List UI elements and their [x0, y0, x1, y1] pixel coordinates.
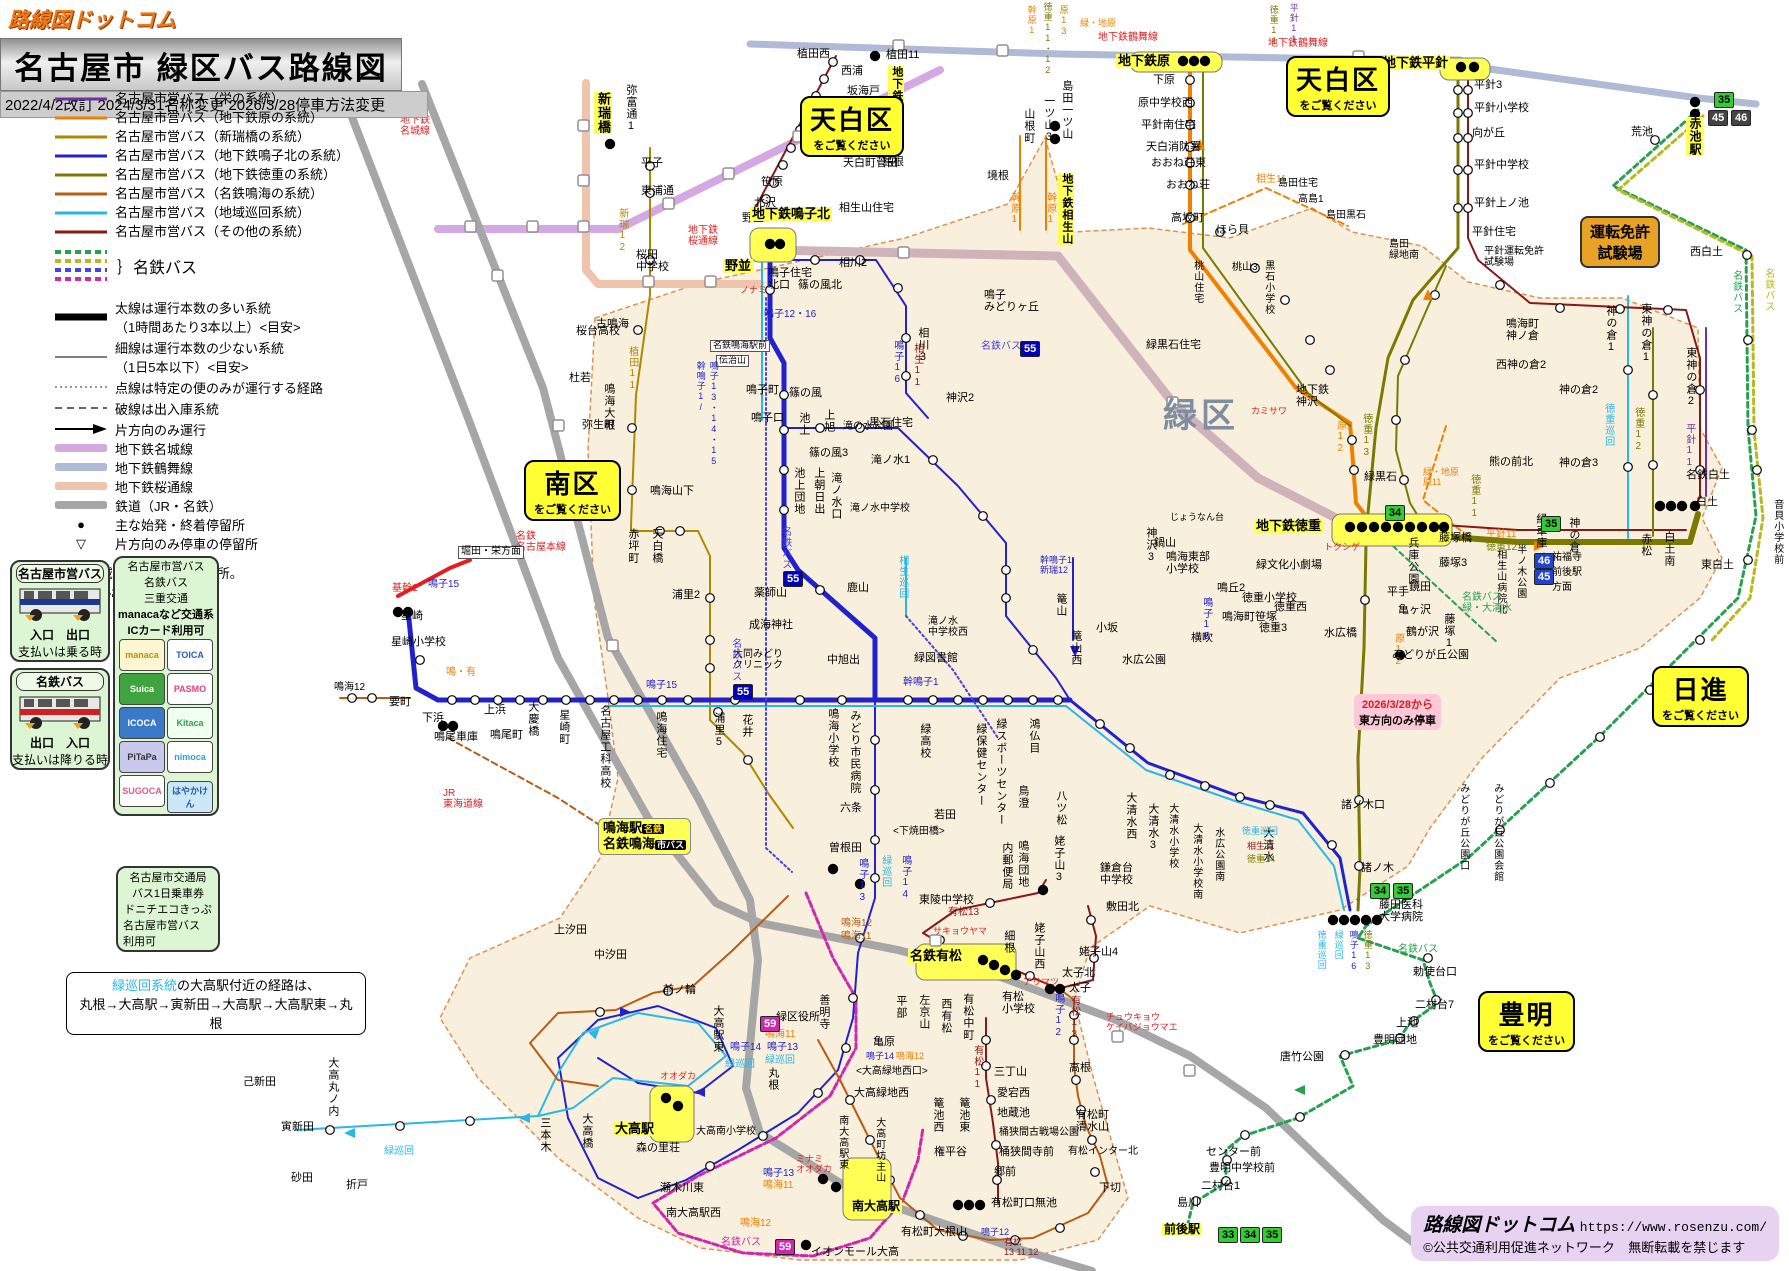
map-stop-label: 平針住宅 — [1472, 227, 1516, 239]
map-stop-label: 島川 — [1177, 1198, 1199, 1210]
map-stop-label: 東神の倉1 — [1639, 303, 1651, 364]
meitetsu-bus-note: 支払いは降りる時 — [12, 751, 108, 768]
map-stop-label: 向が丘 — [1472, 128, 1505, 140]
map-stop-label: 地下鉄徳重 — [1254, 519, 1323, 533]
map-stop-label: 徳重11・12 — [1042, 2, 1052, 76]
map-stop-label: 地下鉄 神沢 — [1296, 385, 1329, 409]
map-stop-label: 鳴子13・14・15 — [708, 361, 718, 467]
map-stop-label: 平針11 — [1486, 530, 1516, 541]
map-stop-label: 植田西 — [797, 49, 830, 61]
map-stop-label: 瀬木川東 — [660, 1183, 704, 1195]
ic-card-manaca: manaca — [119, 639, 165, 671]
map-stop-label: 緑高校 — [918, 723, 930, 759]
route-number-badge: 35 — [1393, 883, 1413, 899]
map-stop-label: 豊明中学校前 — [1209, 1163, 1275, 1175]
map-stop-label: 大高駅 — [613, 1122, 656, 1136]
legend-route-row: 名古屋市営バス（その他の系統） — [55, 221, 349, 240]
map-stop-label: 前後駅 — [1162, 1223, 1202, 1236]
map-stop-label: 大高緑地西 — [854, 1088, 909, 1100]
map-stop-label: 桃山住宅 — [1191, 260, 1202, 304]
map-stop-label: 大慶橋 — [526, 701, 538, 737]
map-stop-label: 太子北 — [1062, 968, 1095, 980]
ic-card-PASMO: PASMO — [167, 673, 213, 705]
map-stop-label: 中汐田 — [594, 950, 627, 962]
map-stop-label: 篠の風北 — [798, 280, 842, 292]
legend-rail-label: 地下鉄桜通線 — [115, 477, 193, 496]
map-stop-label: 大清水小学校南 — [1190, 823, 1201, 900]
map-stop-label: 西白土 — [1690, 247, 1723, 259]
map-stop-label: 勅使台口 — [1413, 967, 1457, 979]
legend-route-swatch — [55, 147, 107, 162]
map-stop-label: 白土 — [1696, 497, 1718, 509]
map-stop-label: 八ツ松 — [1054, 790, 1066, 826]
map-stop-label: 若田 — [934, 810, 956, 822]
map-stop-label: 杜若 — [569, 373, 591, 385]
legend-route-swatch — [55, 223, 107, 238]
map-stop-label: 姥子山3 — [1052, 835, 1064, 884]
ic-card-box: 名古屋市営バス 名鉄バス 三重交通 manacaなど交通系 ICカード利用可 m… — [113, 556, 219, 816]
map-stop-label: 徳重小学校 — [1242, 593, 1297, 605]
map-stop-label: 緑巡回 — [879, 855, 890, 888]
map-stop-label: 緑・地原 — [1080, 19, 1116, 29]
legend-symbol-row: ● 主な始発・終着停留所 — [55, 515, 349, 534]
route-number-badge: 59 — [760, 1016, 780, 1032]
route-number-badge: 45 — [1708, 110, 1728, 126]
legend-route-row: 名古屋市営バス（地域巡回系統） — [55, 202, 349, 221]
map-stop-label: ノナミ — [740, 286, 767, 296]
legend-route-swatch — [55, 90, 107, 105]
ic-operators: 名古屋市営バス 名鉄バス 三重交通 — [115, 558, 217, 606]
station-name: 名鉄鳴海 — [603, 836, 655, 851]
callout-area-name: 豊明 — [1488, 995, 1565, 1032]
page-title: 名古屋市 緑区バス路線図 — [1, 39, 401, 90]
map-stop-label: 幹鳴子1 新瑞12 — [1040, 556, 1072, 575]
callout-see-text: をご覧ください — [1296, 97, 1380, 113]
map-stop-label: 緑図書館 — [914, 653, 958, 665]
map-stop-label: 鶴が沢 — [1406, 627, 1439, 639]
map-stop-label: 愛宕西 — [997, 1088, 1030, 1100]
map-stop-label: 高坂町 — [1171, 213, 1204, 225]
map-stop-label: 東白土 — [1701, 560, 1734, 572]
map-stop-label: 篭池西 — [931, 1097, 943, 1133]
map-stop-label: 上汐田 — [554, 925, 587, 937]
map-stop-label: 鳴海11 — [763, 1181, 793, 1192]
map-stop-label: 唐竹公園 — [1280, 1052, 1324, 1064]
map-stop-label: 島田黒石 — [1326, 211, 1366, 222]
ward-name-label: 緑区 — [1163, 398, 1239, 435]
map-stop-label: 鳴子12・16 — [764, 310, 816, 321]
map-stop-label: 神沢2 — [946, 393, 974, 405]
narumi-station-box: 鳴海駅名鉄名鉄鳴海市バス — [598, 818, 691, 855]
map-stop-label: 高根 — [1069, 1063, 1091, 1075]
map-stop-label: 有松中町 — [961, 993, 973, 1041]
map-stop-label: 徳重11 — [1268, 5, 1278, 47]
map-stop-label: 諸ノ木 — [1361, 863, 1394, 875]
map-stop-label: 地下鉄相生山 — [1058, 173, 1074, 245]
map-stop-label: 名鉄バス — [981, 342, 1021, 353]
map-stop-label: じょうなん台 — [1170, 513, 1224, 523]
map-stop-label: 鳴子13 — [763, 1169, 794, 1180]
route-number-badge: 34 — [1385, 505, 1405, 521]
map-stop-label: 平針南住宅 — [1141, 120, 1196, 132]
loop-note-line2: 丸根→大高駅→寅新田→大高駅→大高駅東→丸根 — [79, 997, 352, 1031]
map-stop-label: 相生巡回 — [896, 555, 907, 599]
daypass-l3: ドニチエコきっぷ — [119, 901, 217, 917]
map-stop-label: 名鉄バス 緑・大清水 — [1462, 593, 1512, 615]
map-stop-label: 山根町 — [1022, 108, 1034, 144]
daypass-l1: 名古屋市交通局 — [119, 869, 217, 885]
map-stop-label: 上池 — [1396, 1018, 1418, 1030]
map-stop-label: 平針3 — [1474, 80, 1502, 92]
map-stop-label: 赤池駅 — [1686, 117, 1703, 156]
notice-date: 2026/3/28から — [1362, 699, 1433, 711]
legend-route-label: 名古屋市営バス（栄の系統） — [115, 88, 284, 107]
map-stop-label: 西浦 — [841, 66, 863, 78]
map-stop-label: カミサワ — [1251, 407, 1287, 417]
legend-rail-swatch — [55, 460, 107, 475]
map-stop-label: 有松 13 11 12 — [1004, 1238, 1038, 1257]
meitetsu-dash-swatch — [55, 257, 107, 266]
map-stop-label: 姥子山4 — [1079, 947, 1118, 959]
map-stop-label: 徳重14 — [1247, 855, 1275, 865]
map-stop-label: トクシゲ — [1324, 543, 1360, 553]
footer-warning: 無断転載を禁じます — [1628, 1240, 1745, 1255]
legend-style-row: 太線は運行本数の多い系統 （1時間あたり3本以上）<目安> — [55, 298, 349, 336]
map-stop-label: 鳴子15 — [428, 580, 459, 591]
map-stop-label: 下原 — [1153, 75, 1175, 87]
map-stop-label: 有松町口無池 — [991, 1198, 1057, 1210]
map-stop-label: 新瑞橋 — [594, 92, 612, 134]
map-stop-label: 緑巡回 — [725, 1060, 755, 1071]
map-stop-label: 島根 — [882, 157, 904, 169]
map-stop-label: 緑黒石 — [1364, 472, 1397, 484]
route-number-badge: 55 — [783, 571, 803, 587]
map-stop-label: 鳴子12 — [1052, 993, 1063, 1039]
map-stop-label: 名鉄バス — [1730, 270, 1741, 314]
map-stop-label: 基幹1 — [392, 584, 418, 595]
legend-symbol-label: 片方向のみ停車の停留所 — [115, 534, 258, 553]
map-stop-label: 水広公園南 — [1212, 827, 1223, 882]
map-stop-label: 豊明団地 — [1373, 1035, 1417, 1047]
map-stop-label: 幹原1 — [1026, 5, 1036, 36]
legend-style-swatch — [55, 350, 107, 365]
ic-card-Kitaca: Kitaca — [167, 707, 213, 739]
city-bus-box: 名古屋市営バス 入口 出口 支払いは乗る時 — [10, 560, 110, 662]
map-stop-label: みどり市民病院 — [848, 710, 860, 794]
map-stop-label: 中旭出 — [827, 655, 860, 667]
ic-card-grid: manacaTOICASuicaPASMOICOCAKitacaPiTaPani… — [115, 638, 217, 814]
map-stop-label: 池上 — [797, 412, 809, 436]
map-stop-label: 郷前 — [994, 1167, 1016, 1179]
map-stop-label: 神の倉2 — [1559, 385, 1598, 397]
map-stop-label: チュウキョウ ケイバジョウマエ — [1106, 1013, 1178, 1032]
callout-area-name: 南区 — [534, 464, 611, 501]
ic-card-SUGOCA: SUGOCA — [119, 775, 165, 807]
legend-route-swatch — [55, 128, 107, 143]
footer-credit: ©公共交通利用促進ネットワーク — [1423, 1240, 1615, 1255]
map-stop-label: 南大高駅西 — [666, 1208, 721, 1220]
map-stop-label: 滝ノ水1 — [871, 455, 910, 467]
see-other-map-callout: 日進をご覧ください — [1652, 666, 1749, 727]
map-stop-label: 鳴子13 — [856, 858, 867, 904]
map-stop-label: 鳴子14 — [730, 1043, 761, 1054]
map-stop-label: 鳴・有 — [446, 668, 476, 679]
map-stop-label: 篭山 — [1054, 593, 1066, 617]
map-stop-label: 亀ヶ沢 — [1398, 605, 1431, 617]
meitetsu-label: ｝名鉄バス — [117, 254, 197, 278]
map-stop-label: 上朝日出 — [812, 467, 824, 515]
map-stop-label: 平針小学校 — [1474, 103, 1529, 115]
map-stop-label: 一ツ山3 — [1042, 95, 1054, 144]
ic-card-TOICA: TOICA — [167, 639, 213, 671]
map-stop-label: 前ノ輪 — [663, 985, 696, 997]
legend-route-row: 名古屋市営バス（新瑞橋の系統） — [55, 126, 349, 145]
map-stop-label: 高島1 — [1298, 195, 1324, 206]
map-stop-label: 桶狭間古戦場公園 — [999, 1128, 1079, 1139]
map-stop-label: JR 東海道線 — [443, 789, 483, 811]
legend-style-swatch — [55, 310, 107, 325]
map-stop-label: 地下鉄平針 — [1381, 56, 1450, 70]
map-stop-label: 曽根田 — [829, 843, 862, 855]
map-stop-label: 藤塚3 — [1439, 558, 1467, 570]
map-stop-label: 大高丸ノ内 — [326, 1057, 338, 1117]
map-stop-label: 亀原 — [873, 1037, 895, 1049]
map-stop-label: 下切 — [1099, 1183, 1121, 1195]
map-stop-label: 東神の倉2 — [1684, 347, 1696, 408]
map-stop-label: 細根 — [1002, 930, 1014, 954]
route-number-badge: 35 — [1541, 516, 1561, 532]
legend-route-label: 名古屋市営バス（地下鉄徳重の系統） — [115, 164, 336, 183]
map-stop-label: 二村台7 — [1415, 1000, 1454, 1012]
map-stop-label: 有松 小学校 — [1002, 992, 1035, 1016]
ic-card-ICOCA: ICOCA — [119, 707, 165, 739]
map-stop-label: 滝ノ水口 — [829, 472, 841, 520]
map-stop-label: 上旭 — [822, 409, 834, 433]
notice-text: 東方向のみ停車 — [1359, 715, 1436, 727]
legend-style-label: 片方向のみ運行 — [115, 420, 206, 439]
map-stop-label: 名鉄バス — [1762, 268, 1773, 312]
map-stop-label: 池上団地 — [792, 467, 804, 515]
map-stop-label: 地下鉄 名城線 — [400, 116, 430, 138]
map-stop-label: 星崎 — [401, 611, 423, 623]
map-stop-label: 太子 — [1069, 983, 1091, 995]
map-stop-label: 丸根 — [766, 1067, 778, 1091]
map-stop-label: 鳴子 みどりヶ丘 — [984, 290, 1039, 314]
map-stop-label: 小坂 — [1096, 623, 1118, 635]
see-other-map-callout: 南区をご覧ください — [524, 460, 621, 521]
legend-route-row: 名古屋市営バス（名鉄鳴海の系統） — [55, 183, 349, 202]
map-stop-label: 平子 — [641, 158, 663, 170]
map-stop-label: 原13 — [1058, 5, 1068, 37]
route-number-badge: 59 — [775, 1239, 795, 1255]
legend-route-row: 名古屋市営バス（栄の系統） — [55, 88, 349, 107]
legend-style-row: 細線は運行本数の少ない系統 （1日5本以下）<目安> — [55, 338, 349, 376]
map-stop-label: 黒石住宅 — [869, 418, 913, 430]
map-stop-label: 鍋山 — [1154, 538, 1176, 550]
ic-card-nimoca: nimoca — [167, 741, 213, 773]
map-stop-label: 折戸 — [346, 1180, 368, 1192]
legend-route-label: 名古屋市営バス（地下鉄鳴子北の系統） — [115, 145, 349, 164]
map-stop-label: 名鉄バス — [779, 526, 790, 570]
map-stop-label: ミナミ オオダカ — [796, 1155, 832, 1174]
callout-see-text: をご覧ください — [1662, 707, 1739, 723]
map-stop-label: イオンモール大高 — [811, 1247, 899, 1259]
map-stop-label: 鳴海12 — [896, 1052, 924, 1062]
map-stop-label: 大清水3 — [1146, 803, 1158, 852]
map-stop-label: 新瑞12 — [616, 208, 627, 254]
map-stop-label: 神の倉 — [1567, 517, 1579, 553]
map-stop-label: 南大高駅東 — [836, 1115, 847, 1170]
route-map-stage: 緑区植田西植田11地下鉄植田西浦坂海戸島田天白郵便局海老山天白町菅田笹原北沢野並… — [0, 0, 1789, 1271]
map-stop-label: 篠の風 — [789, 388, 822, 400]
map-stop-label: 浦里2 — [672, 590, 700, 602]
map-stop-label: 名鉄バス — [721, 1238, 761, 1249]
map-stop-label: 徳重12 — [1486, 543, 1517, 554]
map-stop-label: 緑・地原 原11 — [1423, 468, 1459, 487]
map-stop-label: 平針11 — [1683, 423, 1694, 469]
meitetsu-dash-swatch — [55, 275, 107, 284]
map-stop-label: 大高南小学校 — [696, 1127, 756, 1138]
map-stop-label: 大高町坊主山 — [873, 1117, 884, 1183]
map-stop-label: 徳重巡回 — [1316, 930, 1326, 970]
map-stop-label: 六条 — [840, 803, 862, 815]
legend-rail-row: 地下鉄鶴舞線 — [55, 458, 349, 477]
map-stop-label: 音貝小学校前 — [1771, 499, 1782, 565]
map-stop-label: 幹鳴子1 — [903, 678, 939, 689]
map-stop-label: 相生11 — [911, 343, 922, 389]
meitetsu-bus-title: 名鉄バス — [16, 672, 104, 691]
legend-style-swatch — [55, 422, 107, 437]
map-stop-label: ほら貝 — [1216, 225, 1249, 237]
meitetsu-bus-doors: 出口 入口 — [12, 734, 108, 751]
map-stop-label: 神の倉1 — [1604, 305, 1616, 354]
loop-route-note: 緑巡回系統の大高駅付近の経路は、 丸根→大高駅→寅新田→大高駅→大高駅東→丸根 — [66, 972, 366, 1035]
city-bus-icon — [16, 585, 104, 623]
map-stop-label: みどりが丘公園口 — [1457, 783, 1468, 871]
map-stop-label: 徳重13 — [1362, 930, 1372, 972]
map-stop-label: みどりが丘公園 — [1392, 650, 1469, 662]
route-number-badge: 35 — [1262, 1227, 1282, 1243]
map-stop-label: 相生山住宅 — [839, 203, 894, 215]
map-stop-label: 大清水西 — [1124, 792, 1136, 840]
legend-rail-row: 地下鉄桜通線 — [55, 477, 349, 496]
map-stop-label: 島田 緑地南 — [1389, 240, 1419, 262]
legend-route-label: 名古屋市営バス（その他の系統） — [115, 221, 310, 240]
map-stop-label: 有松町 清水山 — [1076, 1110, 1109, 1134]
legend-style-row: 破線は出入庫系統 — [55, 399, 349, 418]
route-number-badge: 46 — [1731, 110, 1751, 126]
map-stop-label: 鳴尾町 — [490, 730, 523, 742]
map-stop-label: 鳴子15 — [646, 681, 677, 692]
map-stop-label: 鳴海12 — [334, 683, 365, 694]
map-stop-label: 鎌倉台 中学校 — [1100, 863, 1133, 887]
legend-rail-row: 地下鉄名城線 — [55, 439, 349, 458]
map-stop-label: 要町 — [389, 697, 411, 709]
map-stop-label: 浦里5 — [712, 712, 724, 749]
map-stop-label: 緑巡回 — [765, 1056, 795, 1067]
map-stop-label: 徳重13 — [1360, 413, 1371, 459]
map-stop-label: 権平谷 — [934, 1147, 967, 1159]
legend-rail-swatch — [55, 479, 107, 494]
map-stop-label: 鳴海小学校 — [826, 708, 838, 768]
legend-route-swatch — [55, 166, 107, 181]
map-stop-label: 滝ノ水中学校 — [850, 504, 910, 515]
map-stop-label: 白土南 — [1662, 531, 1674, 567]
footer-url: https://www.rosenzu.com/ — [1580, 1220, 1767, 1235]
legend-symbol: ▽ — [55, 536, 107, 552]
route-number-badge: 46 — [1534, 553, 1554, 569]
map-stop-label: 地下鉄鶴舞線 — [1098, 33, 1158, 44]
map-stop-label: 平針11 — [1288, 3, 1298, 45]
map-stop-label: 有松11 — [971, 1045, 982, 1091]
meitetsu-bus-box: 名鉄バス 出口 入口 支払いは降りる時 — [10, 668, 110, 770]
legend-style-swatch — [55, 380, 107, 395]
legend-style-swatch — [55, 401, 107, 416]
ic-card-Suica: Suica — [119, 673, 165, 705]
map-stop-label: 滝ノ水 中学校西 — [928, 617, 968, 639]
map-stop-label: アリマツ — [1023, 978, 1059, 988]
map-stop-label: 平部 — [894, 995, 906, 1019]
map-stop-label: 緑黒石住宅 — [1146, 340, 1201, 352]
map-stop-label: 鳴海11 — [841, 932, 871, 943]
map-stop-label: 幹原1 — [1008, 192, 1019, 226]
title-bar: 名古屋市 緑区バス路線図 — [0, 38, 402, 91]
map-stop-label: 鳴海12 — [841, 919, 872, 930]
map-stop-label: オオダカ — [660, 1072, 696, 1082]
see-other-map-callout: 天白区をご覧ください — [1286, 56, 1390, 117]
meitetsu-dash-swatch — [55, 266, 107, 275]
operator-badge: 名鉄 — [642, 824, 664, 834]
ic-card-はやかけん: はやかけん — [167, 781, 213, 813]
legend-route-label: 名古屋市営バス（地域巡回系統） — [115, 202, 310, 221]
map-stop-label: 姥子山西 — [1032, 922, 1044, 970]
map-stop-label: 兵庫公園 — [1406, 537, 1418, 585]
map-stop-label: 藤田医科 大学病院 — [1379, 900, 1423, 924]
legend: 名古屋市営バス（栄の系統） 名古屋市営バス（地下鉄原の系統） 名古屋市営バス（新… — [55, 88, 349, 601]
map-stop-label: 横吹 — [1191, 633, 1213, 645]
map-stop-label: 諸ノ木口 — [1341, 800, 1385, 812]
map-stop-label: 天白橋 — [650, 528, 662, 564]
map-stop-label: 有松13 — [948, 908, 979, 919]
legend-meitetsu: ｝名鉄バス — [55, 248, 349, 284]
map-stop-label: 笹原 — [761, 177, 783, 189]
map-stop-label: <下焼田橋> — [893, 827, 945, 838]
legend-rail-swatch — [55, 441, 107, 456]
map-stop-label: 方面 — [1552, 583, 1572, 594]
map-stop-label: 大高駅東 — [711, 1005, 723, 1053]
city-bus-title: 名古屋市営バス — [16, 564, 104, 583]
callout-see-text: をご覧ください — [1488, 1032, 1565, 1048]
map-stop-label: 地蔵池 — [997, 1108, 1030, 1120]
map-stop-label: 大高橋 — [580, 1113, 592, 1149]
map-stop-label: 名鉄白土 — [1686, 470, 1730, 482]
map-stop-label: みどりが丘公園会館 — [1491, 783, 1502, 882]
map-stop-label: 星崎町 — [557, 709, 569, 745]
route-number-badge: 45 — [1534, 569, 1554, 585]
meitetsu-dash-swatch — [55, 248, 107, 257]
route-number-badge: 35 — [1714, 92, 1734, 108]
legend-route-row: 名古屋市営バス（地下鉄原の系統） — [55, 107, 349, 126]
map-stop-label: 南大高駅 — [850, 1200, 902, 1213]
map-stop-label: 地下鉄鳴子北 — [750, 207, 832, 221]
route-number-badge: 33 — [1218, 1227, 1238, 1243]
station-name: 鳴海駅 — [603, 820, 642, 835]
map-stop-label: 上浜 — [484, 705, 506, 717]
map-stop-label: 鳴尾車庫 — [434, 732, 478, 744]
map-stop-label: 東浦通 — [641, 186, 674, 198]
map-stop-label: 有松インター北 — [1068, 1147, 1138, 1158]
map-stop-label: 地下鉄原 — [1116, 54, 1172, 68]
